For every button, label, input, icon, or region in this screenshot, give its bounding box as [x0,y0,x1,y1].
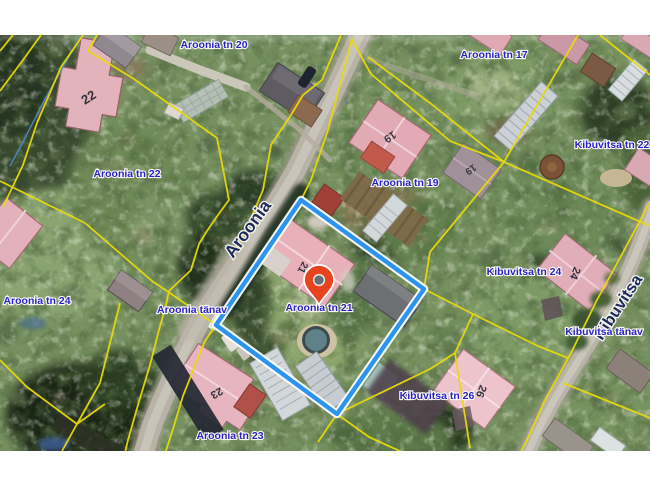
svg-text:Aroonia tn 24: Aroonia tn 24 [3,295,70,307]
svg-text:Kibuvitsa tn 22: Kibuvitsa tn 22 [575,139,650,151]
svg-text:Kibuvitsa tänav: Kibuvitsa tänav [565,326,643,338]
svg-text:Aroonia tänav: Aroonia tänav [157,304,227,316]
svg-text:Kibuvitsa tn 26: Kibuvitsa tn 26 [400,390,475,402]
svg-text:Aroonia tn 17: Aroonia tn 17 [460,49,527,61]
svg-text:Aroonia tn 23: Aroonia tn 23 [196,430,263,442]
svg-text:Kibuvitsa tn 24: Kibuvitsa tn 24 [487,266,562,278]
svg-text:Aroonia tn 19: Aroonia tn 19 [371,177,438,189]
svg-text:Aroonia tn 22: Aroonia tn 22 [93,168,160,180]
svg-text:Aroonia tn 20: Aroonia tn 20 [180,39,247,51]
